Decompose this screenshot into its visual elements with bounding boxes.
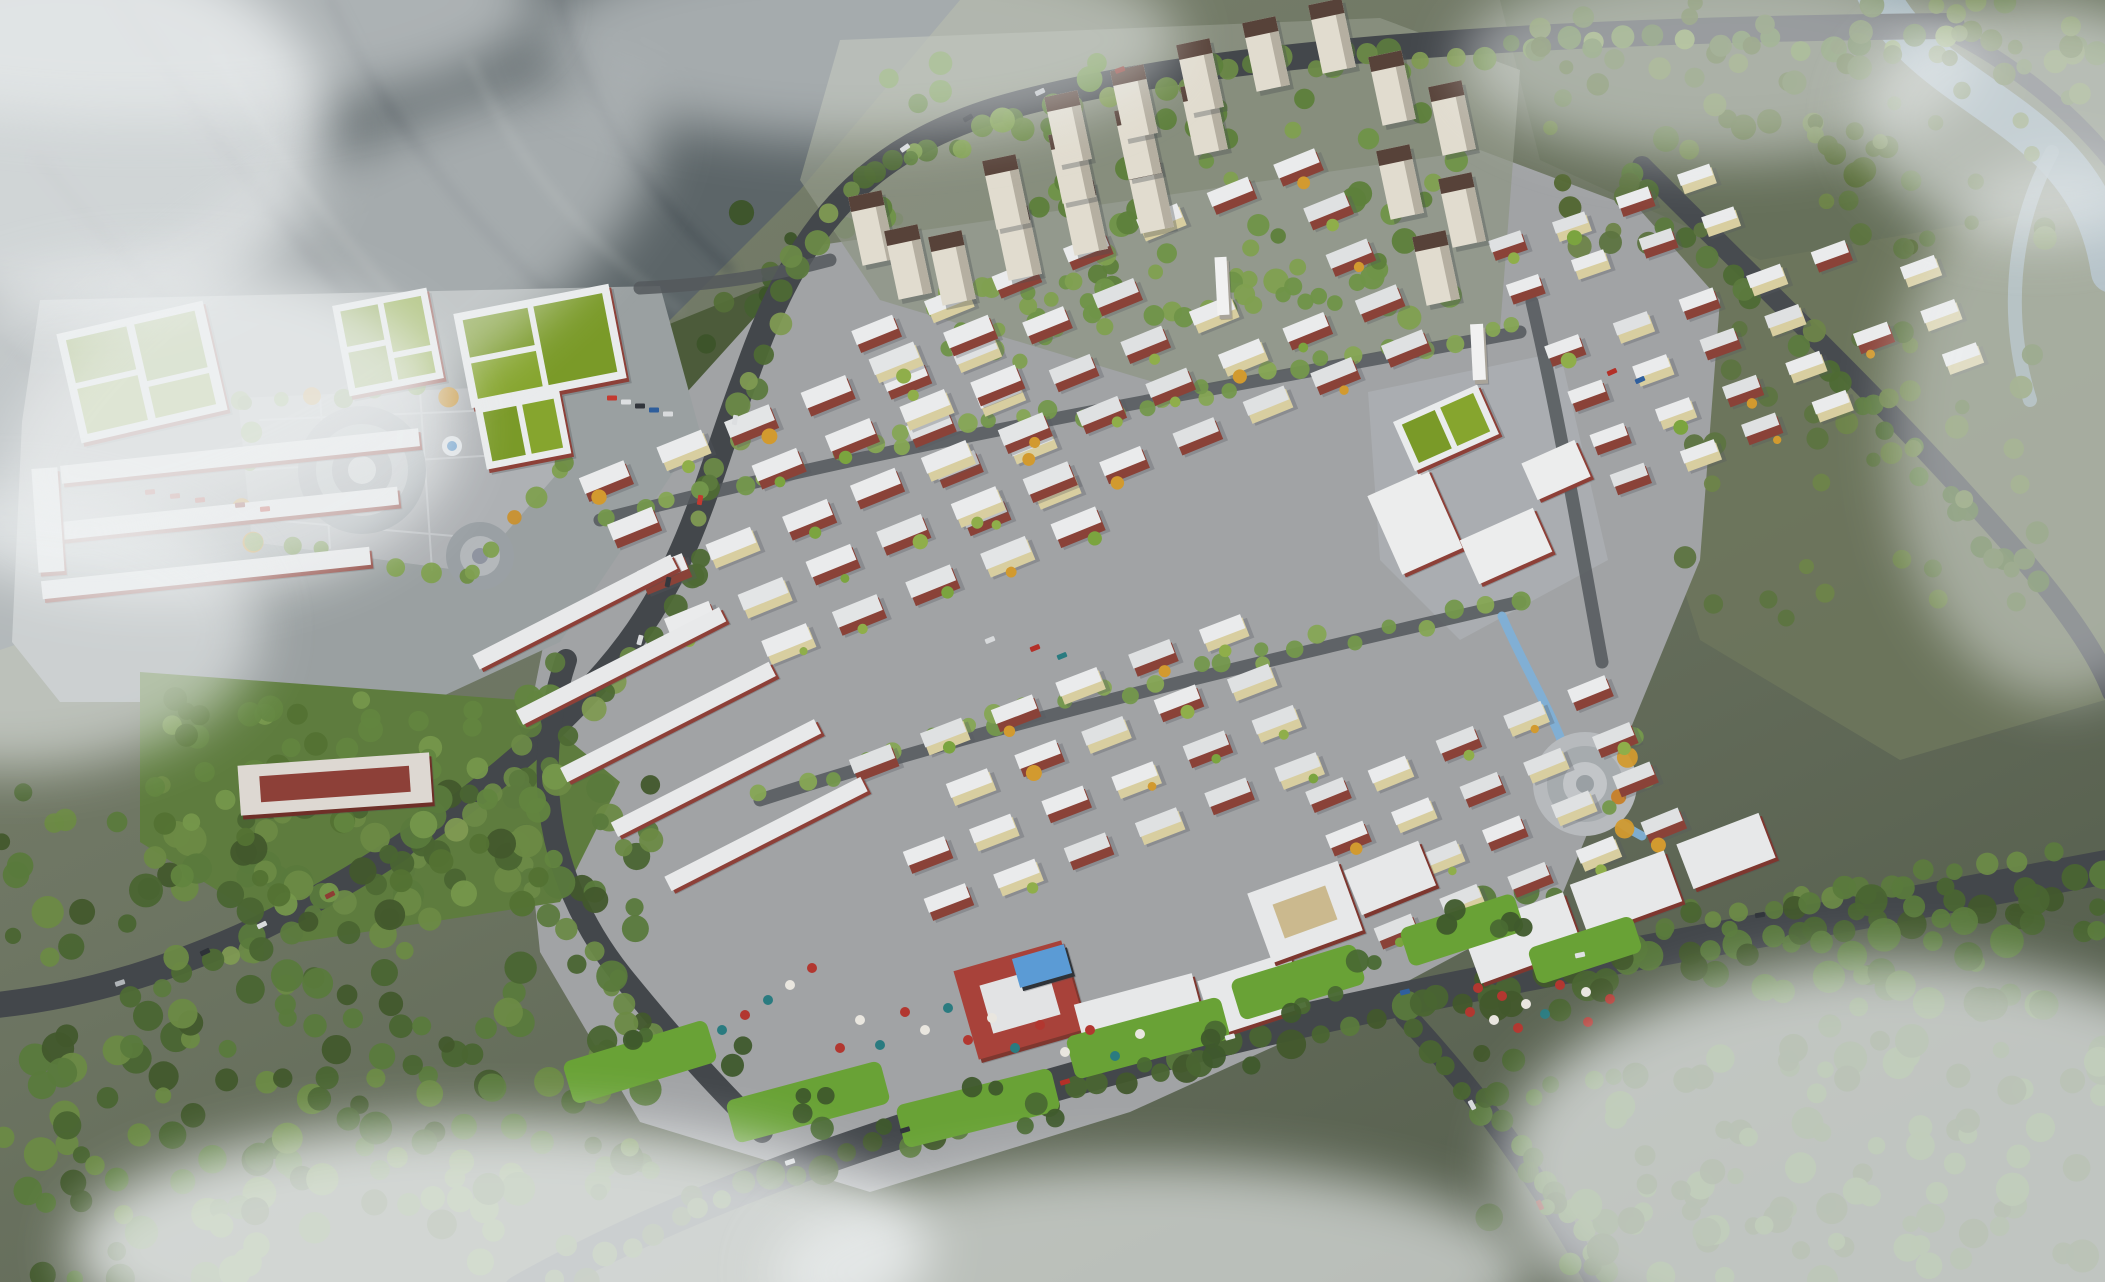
masterplan-aerial-render (0, 0, 2105, 1282)
scene-root (0, 0, 2105, 1282)
scene-canvas (0, 0, 2105, 1282)
paving-circle (446, 522, 514, 590)
